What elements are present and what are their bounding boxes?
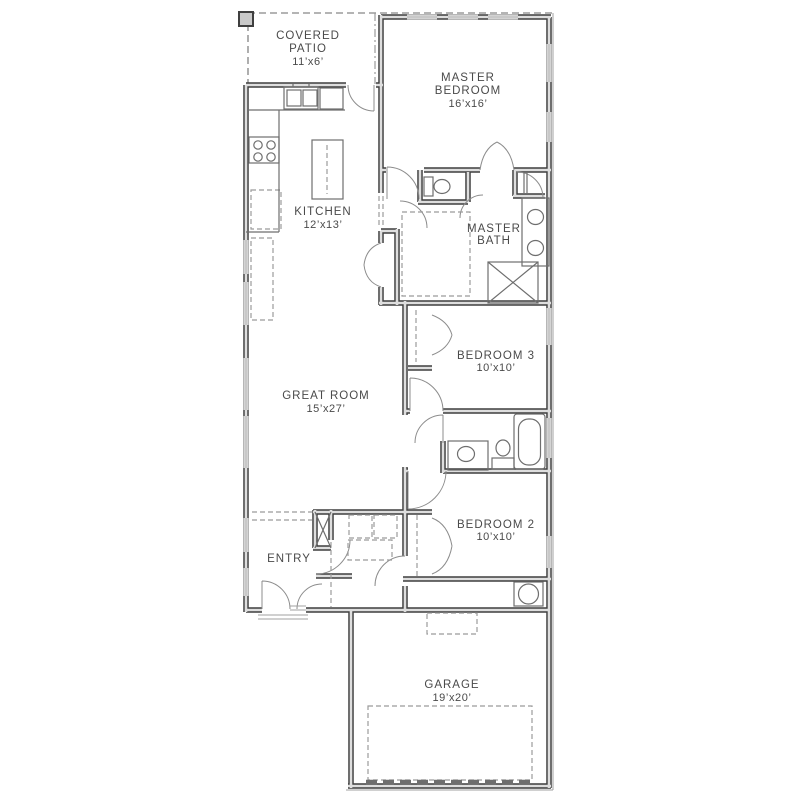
garage-label: GARAGE [424,679,479,691]
windows [246,17,549,596]
water-heater-icon [514,582,543,606]
shower-icon [488,262,538,303]
bedroom-3-door-icon [410,378,443,411]
room-labels: COVERED PATIO 11’x6’ MASTER BEDROOM 16’x… [267,30,535,704]
walk-in-closet-shelving-icon [402,212,470,296]
porch-step-icon [258,615,308,619]
optional-cabinet-icon [251,238,273,320]
patio-door-icon [348,85,374,111]
refrigerator-icon [251,190,281,229]
covered-patio-dims: 11’x6’ [292,56,324,68]
front-door-icon [262,581,290,609]
floor-plan: COVERED PATIO 11’x6’ MASTER BEDROOM 16’x… [0,0,800,800]
range-icon [249,137,279,163]
master-vanity-icon [522,198,549,266]
entry-label: ENTRY [267,553,311,565]
dishwasher-icon [320,88,343,109]
bedroom-2-label: BEDROOM 2 [457,519,535,531]
bathtub-icon [514,414,545,469]
master-suite-door-icon [387,167,419,199]
master-bath-label: MASTER [467,223,521,235]
master-bath-doors-icon [480,142,514,170]
bedroom-2-dims: 10’x10’ [476,531,515,543]
water-closet-door-icon [460,195,483,218]
bedroom-3-closet-doors-icon [432,315,452,355]
linen-shelves-icon [524,172,527,194]
floor-plan-drawing: COVERED PATIO 11’x6’ MASTER BEDROOM 16’x… [0,0,800,800]
kitchen-label: KITCHEN [294,206,351,218]
hall-bath-vanity-icon [448,441,488,470]
corridor-door-icon [297,584,322,609]
bedroom-3-dims: 10’x10’ [476,362,515,374]
covered-patio-label: COVERED [276,30,340,42]
dryer-icon [374,515,397,538]
laundry-counter-icon [348,540,392,560]
hall-bath-toilet-icon [492,440,514,469]
front-threshold-icon [290,606,306,610]
great-room-closet-doors-icon [364,243,381,287]
entry-header-icon [252,512,312,520]
covered-patio-label2: PATIO [289,43,327,55]
bedroom-2-closet-doors-icon [432,518,452,574]
great-room-dims: 15’x27’ [306,403,345,415]
walk-in-closet-door-icon [400,201,427,228]
bedroom-3-label: BEDROOM 3 [457,350,535,362]
patio-post-icon [239,12,253,26]
hall-bath-door-icon [415,415,443,443]
master-bedroom-label: MASTER [441,72,495,84]
attic-access-icon [427,613,477,634]
garage-dims: 19’x20’ [432,692,471,704]
garage-parking-pad-icon [368,706,532,780]
master-bedroom-dims: 16’x16’ [448,98,487,110]
bedroom-2-door-icon [408,471,446,509]
kitchen-dims: 12’x13’ [303,219,342,231]
master-bath-label2: BATH [477,235,511,247]
master-bedroom-label2: BEDROOM [435,85,501,97]
coat-closet-door-icon [316,540,350,574]
great-room-label: GREAT ROOM [282,390,370,402]
water-closet-toilet-icon [424,177,450,196]
washer-icon [349,515,372,538]
